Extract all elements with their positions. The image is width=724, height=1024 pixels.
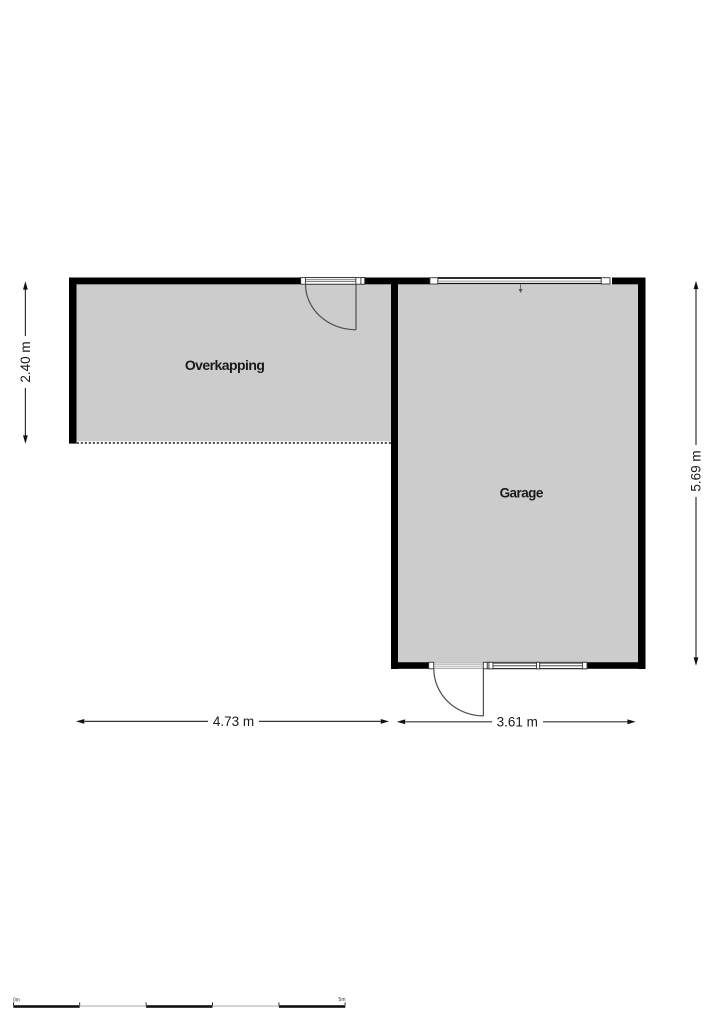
svg-text:5m: 5m xyxy=(339,997,346,1003)
svg-text:2.40 m: 2.40 m xyxy=(18,341,33,382)
svg-text:5.69 m: 5.69 m xyxy=(689,450,704,491)
svg-text:Overkapping: Overkapping xyxy=(185,357,265,373)
svg-text:3.61 m: 3.61 m xyxy=(497,714,538,729)
svg-text:0m: 0m xyxy=(13,998,20,1004)
svg-text:4.73 m: 4.73 m xyxy=(213,714,254,729)
svg-text:Garage: Garage xyxy=(500,485,544,500)
